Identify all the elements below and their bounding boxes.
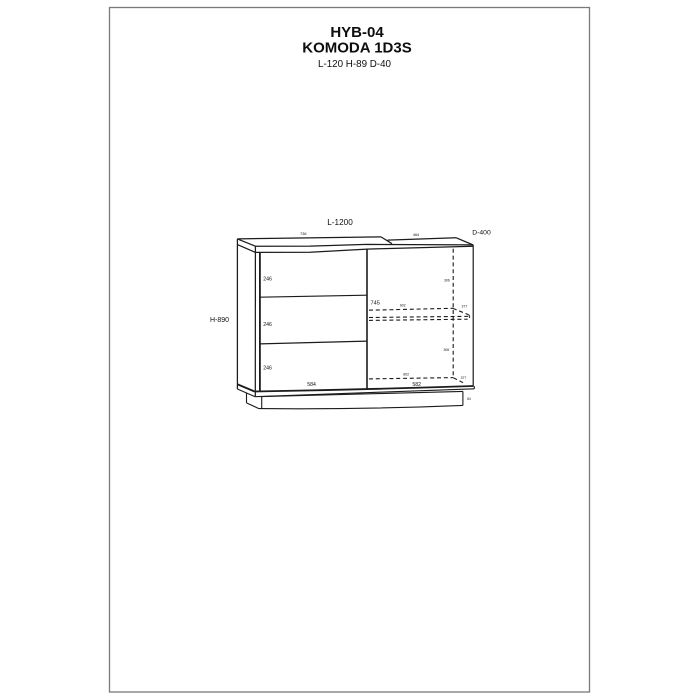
svg-text:464: 464 <box>413 233 419 237</box>
svg-text:377: 377 <box>461 376 467 380</box>
svg-text:H-890: H-890 <box>210 317 229 324</box>
svg-text:D-400: D-400 <box>472 230 491 237</box>
svg-text:602: 602 <box>400 304 406 308</box>
svg-text:736: 736 <box>300 232 306 236</box>
svg-text:L-120 H-89 D-40: L-120 H-89 D-40 <box>318 59 392 70</box>
svg-text:246: 246 <box>263 277 272 283</box>
svg-text:306: 306 <box>443 348 449 352</box>
svg-text:745: 745 <box>371 300 380 306</box>
svg-text:HYB-04: HYB-04 <box>330 24 384 41</box>
svg-text:582: 582 <box>412 382 421 388</box>
svg-text:84: 84 <box>467 397 471 401</box>
svg-text:306: 306 <box>444 279 450 283</box>
svg-text:246: 246 <box>263 365 272 371</box>
svg-text:584: 584 <box>307 382 316 388</box>
svg-text:377: 377 <box>461 305 467 309</box>
svg-text:KOMODA 1D3S: KOMODA 1D3S <box>302 40 411 57</box>
svg-text:L-1200: L-1200 <box>327 218 353 227</box>
svg-text:602: 602 <box>403 373 409 377</box>
svg-text:246: 246 <box>263 322 272 328</box>
